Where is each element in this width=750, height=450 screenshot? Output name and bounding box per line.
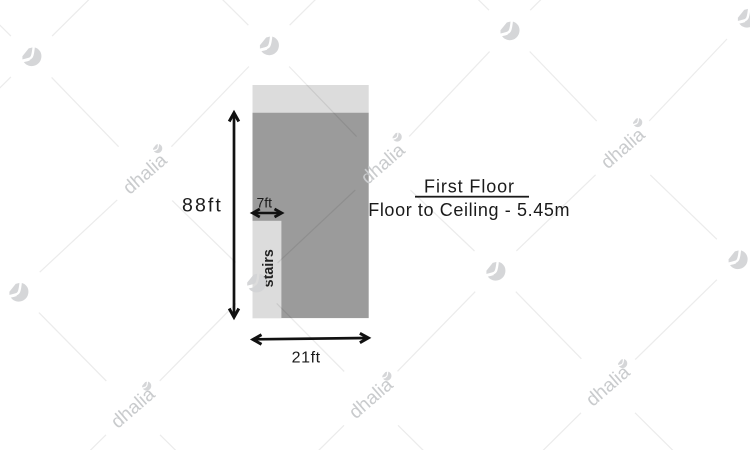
svg-text:21ft: 21ft: [292, 349, 321, 366]
svg-text:88ft: 88ft: [182, 195, 223, 217]
svg-text:dhalia: dhalia: [597, 124, 649, 173]
svg-text:First Floor: First Floor: [424, 177, 515, 197]
svg-text:Floor to Ceiling - 5.45m: Floor to Ceiling - 5.45m: [368, 200, 570, 220]
svg-text:dhalia: dhalia: [345, 374, 397, 423]
svg-text:dhalia: dhalia: [119, 150, 171, 199]
svg-text:7ft: 7ft: [257, 195, 273, 211]
svg-text:dhalia: dhalia: [107, 384, 159, 433]
svg-text:dhalia: dhalia: [582, 362, 634, 411]
